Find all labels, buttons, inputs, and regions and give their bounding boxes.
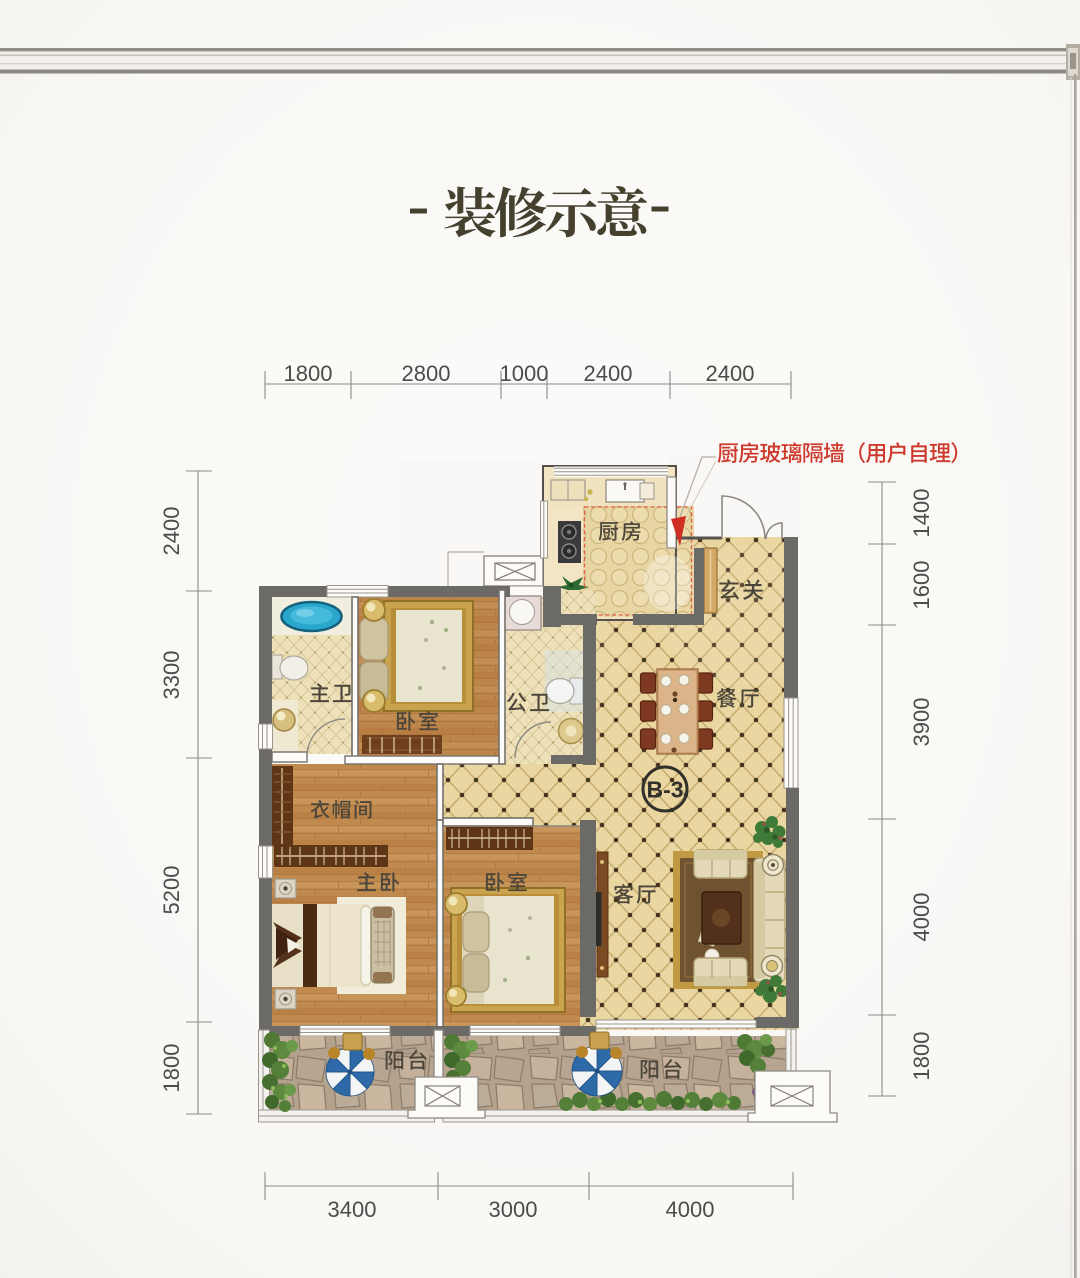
svg-text:1400: 1400 (909, 489, 934, 538)
svg-text:5200: 5200 (159, 866, 184, 915)
svg-text:4000: 4000 (666, 1197, 715, 1222)
svg-text:1800: 1800 (284, 361, 333, 386)
svg-text:1600: 1600 (909, 561, 934, 610)
svg-text:1800: 1800 (909, 1032, 934, 1081)
svg-text:3000: 3000 (489, 1197, 538, 1222)
svg-text:1800: 1800 (159, 1044, 184, 1093)
svg-text:3300: 3300 (159, 651, 184, 700)
svg-text:2400: 2400 (159, 507, 184, 556)
svg-text:3400: 3400 (328, 1197, 377, 1222)
svg-text:3900: 3900 (909, 698, 934, 747)
svg-text:2800: 2800 (402, 361, 451, 386)
svg-text:1000: 1000 (500, 361, 549, 386)
svg-text:2400: 2400 (584, 361, 633, 386)
svg-text:B-3: B-3 (646, 777, 683, 803)
svg-text:4000: 4000 (909, 893, 934, 942)
svg-text:2400: 2400 (706, 361, 755, 386)
